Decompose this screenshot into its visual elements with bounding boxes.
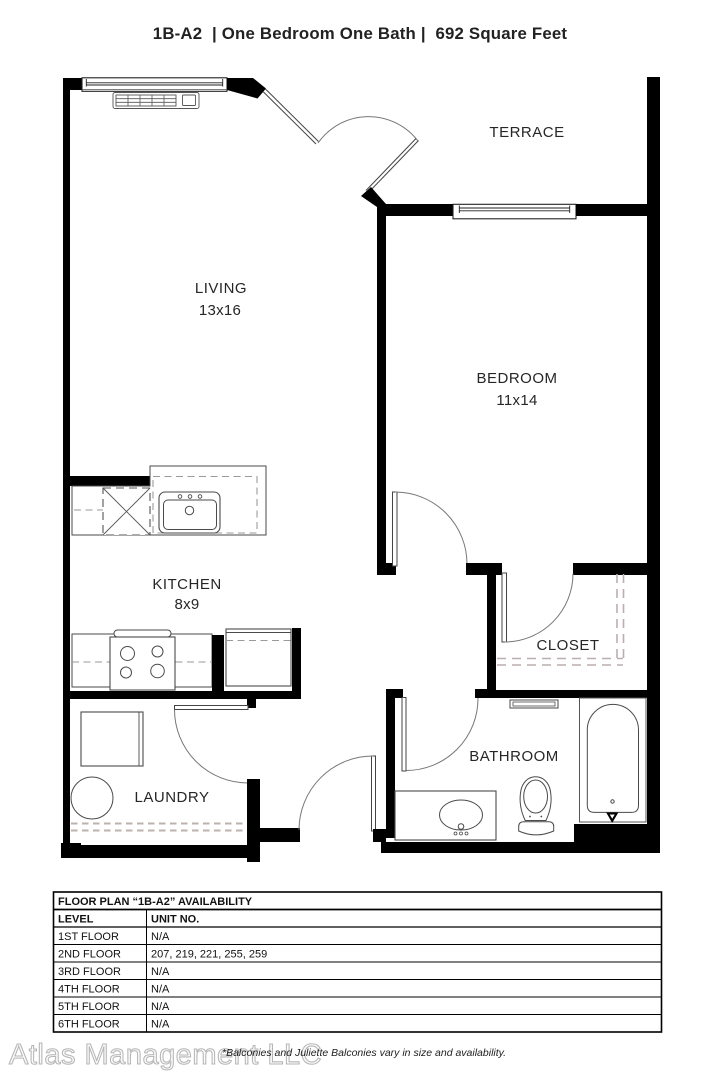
svg-text:207, 219, 221, 255, 259: 207, 219, 221, 255, 259 <box>151 949 267 961</box>
svg-text:BEDROOM: BEDROOM <box>476 370 557 387</box>
svg-text:N/A: N/A <box>151 931 170 943</box>
svg-text:LAUNDRY: LAUNDRY <box>135 789 210 806</box>
svg-text:N/A: N/A <box>151 1001 170 1013</box>
svg-text:UNIT NO.: UNIT NO. <box>151 914 199 926</box>
svg-text:KITCHEN: KITCHEN <box>152 576 221 593</box>
svg-text:5TH FLOOR: 5TH FLOOR <box>58 1001 120 1013</box>
svg-text:8x9: 8x9 <box>174 596 199 613</box>
svg-text:11x14: 11x14 <box>496 392 537 409</box>
svg-text:N/A: N/A <box>151 984 170 996</box>
svg-text:N/A: N/A <box>151 1019 170 1031</box>
svg-text:3RD FLOOR: 3RD FLOOR <box>58 966 121 978</box>
svg-text:4TH FLOOR: 4TH FLOOR <box>58 984 120 996</box>
svg-text:LEVEL: LEVEL <box>58 914 94 926</box>
svg-text:13x16: 13x16 <box>199 302 241 319</box>
svg-text:BATHROOM: BATHROOM <box>469 748 559 765</box>
svg-text:1B-A2 | One Bedroom One Bath: 1B-A2 | One Bedroom One Bath | 692 Squar… <box>153 24 568 43</box>
svg-text:N/A: N/A <box>151 966 170 978</box>
svg-text:2ND FLOOR: 2ND FLOOR <box>58 949 121 961</box>
svg-text:LIVING: LIVING <box>195 280 247 297</box>
svg-text:CLOSET: CLOSET <box>536 637 599 654</box>
svg-text:TERRACE: TERRACE <box>489 124 564 141</box>
svg-text:1ST FLOOR: 1ST FLOOR <box>58 931 119 943</box>
svg-text:6TH FLOOR: 6TH FLOOR <box>58 1019 120 1031</box>
svg-text:FLOOR PLAN “1B-A2” AVAILABILIT: FLOOR PLAN “1B-A2” AVAILABILITY <box>58 896 253 908</box>
